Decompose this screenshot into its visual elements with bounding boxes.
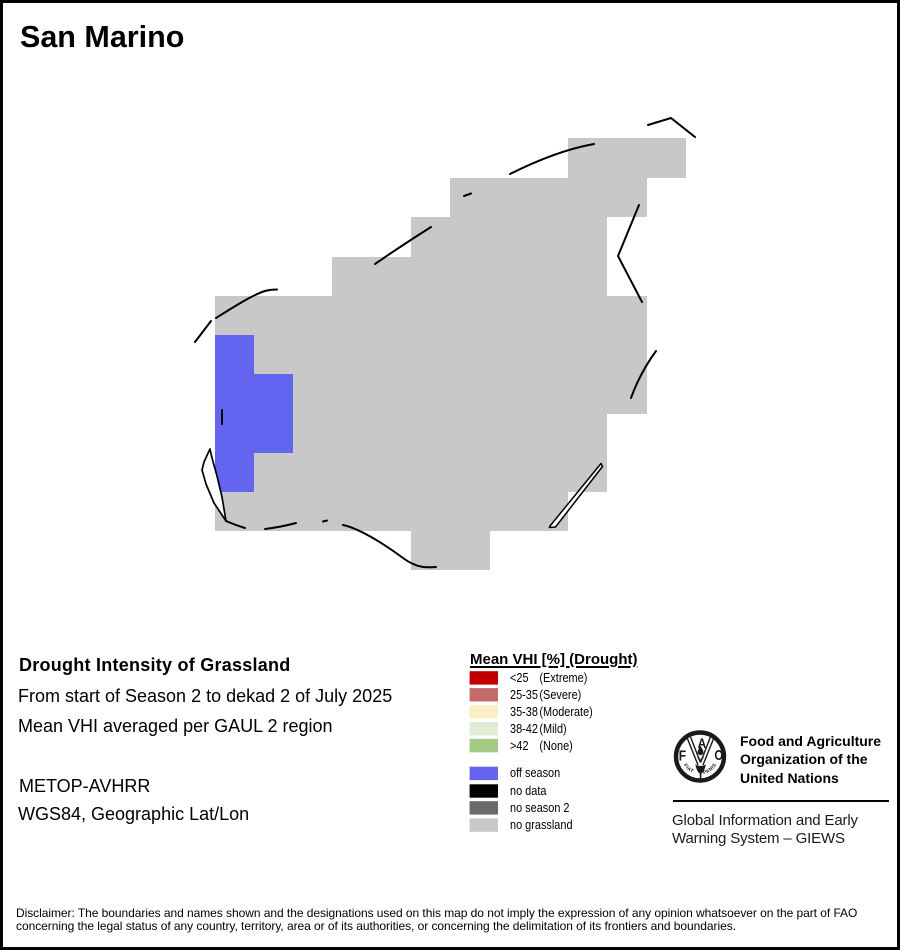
svg-text:O: O	[714, 747, 723, 764]
svg-text:F: F	[679, 748, 686, 765]
